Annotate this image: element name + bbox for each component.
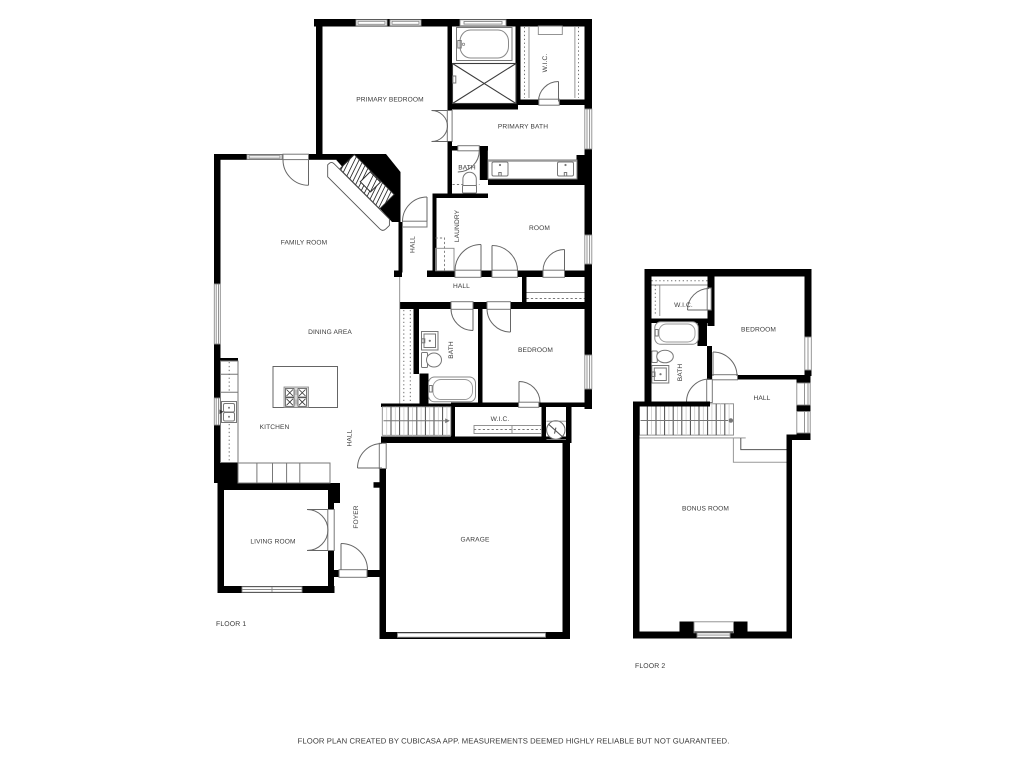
svg-text:HALL: HALL [453,283,470,290]
svg-text:GARAGE: GARAGE [461,537,490,544]
svg-text:BEDROOM: BEDROOM [741,327,776,334]
svg-text:LIVING ROOM: LIVING ROOM [250,539,295,546]
svg-text:BEDROOM: BEDROOM [518,347,553,354]
svg-text:FLOOR 2: FLOOR 2 [635,663,665,670]
svg-text:PRIMARY BATH: PRIMARY BATH [498,124,548,131]
svg-text:FAMILY ROOM: FAMILY ROOM [281,240,328,247]
svg-text:FOYER: FOYER [353,505,360,528]
svg-text:PRIMARY BEDROOM: PRIMARY BEDROOM [356,97,424,104]
svg-text:W.I.C.: W.I.C. [674,302,693,309]
svg-text:BATH: BATH [458,165,476,172]
svg-text:ROOM: ROOM [529,225,550,232]
svg-text:BONUS ROOM: BONUS ROOM [682,506,729,513]
svg-text:BATH: BATH [677,364,684,382]
svg-text:DINING AREA: DINING AREA [308,329,352,336]
svg-text:W.I.C.: W.I.C. [542,54,549,73]
svg-text:HALL: HALL [754,395,771,402]
svg-text:FLOOR 1: FLOOR 1 [216,621,246,628]
svg-text:FLOOR PLAN CREATED BY CUBICASA: FLOOR PLAN CREATED BY CUBICASA APP. MEAS… [298,737,730,746]
svg-text:W.I.C.: W.I.C. [491,416,510,423]
svg-text:LAUNDRY: LAUNDRY [454,209,461,242]
svg-text:KITCHEN: KITCHEN [260,424,290,431]
svg-text:HALL: HALL [347,429,354,446]
svg-text:BATH: BATH [448,341,455,359]
svg-text:HALL: HALL [410,236,417,253]
